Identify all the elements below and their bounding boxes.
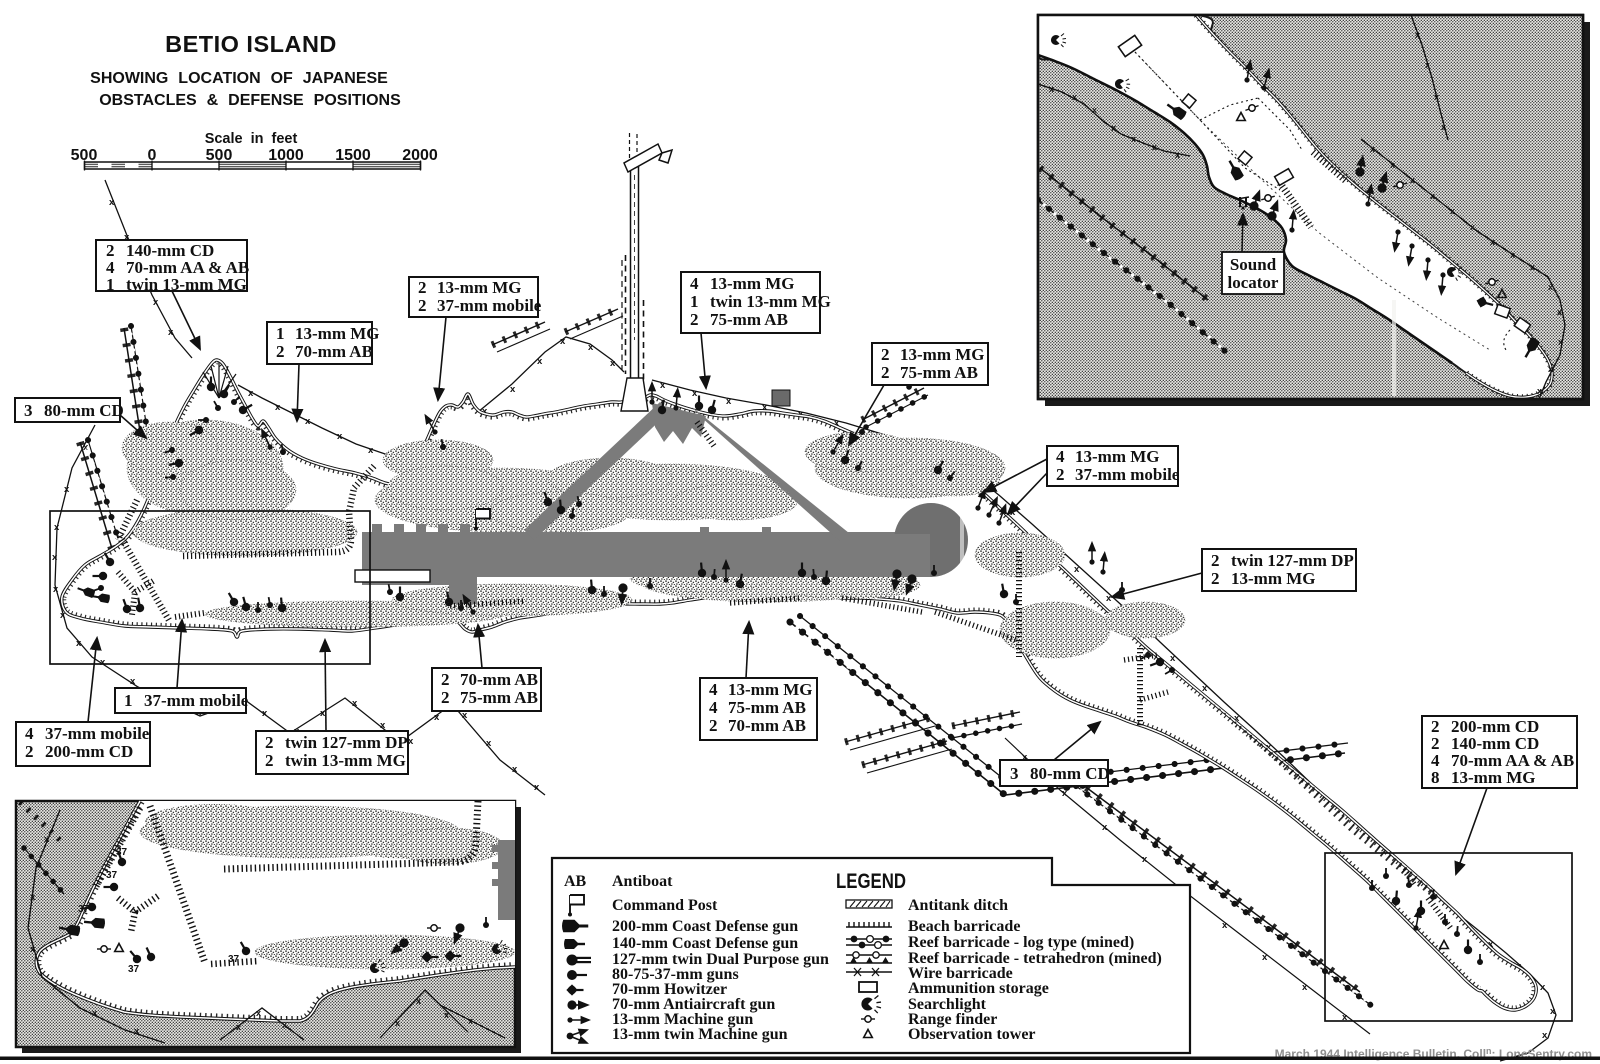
svg-text:Sound: Sound: [1230, 255, 1277, 274]
svg-text:x: x: [1415, 30, 1420, 40]
svg-text:x: x: [134, 1026, 140, 1037]
svg-text:x: x: [1175, 150, 1180, 160]
svg-text:twin 13-mm MG: twin 13-mm MG: [710, 292, 831, 311]
svg-text:200-mm Coast Defense gun: 200-mm Coast Defense gun: [612, 918, 798, 935]
svg-text:140-mm Coast Defense gun: 140-mm Coast Defense gun: [612, 935, 798, 952]
svg-text:1: 1: [276, 324, 285, 343]
svg-text:70-mm AB: 70-mm AB: [728, 716, 806, 735]
svg-text:4: 4: [690, 274, 699, 293]
svg-text:37: 37: [106, 870, 118, 881]
svg-text:x: x: [1049, 84, 1054, 94]
svg-text:x: x: [282, 1020, 287, 1030]
svg-text:x: x: [1510, 250, 1515, 260]
svg-text:x: x: [337, 431, 343, 442]
svg-text:x: x: [610, 358, 616, 369]
svg-text:twin 127-mm DP: twin 127-mm DP: [285, 733, 408, 752]
svg-text:80-mm CD: 80-mm CD: [44, 401, 124, 420]
svg-text:13-mm twin Machine gun: 13-mm twin Machine gun: [612, 1026, 788, 1043]
svg-text:75-mm AB: 75-mm AB: [728, 698, 806, 717]
svg-text:SHOWING LOCATION OF JAPANESE: SHOWING LOCATION OF JAPANESE: [90, 70, 388, 87]
svg-text:x: x: [1490, 237, 1495, 247]
svg-text:twin 127-mm DP: twin 127-mm DP: [1231, 551, 1354, 570]
svg-text:13-mm MG: 13-mm MG: [728, 680, 813, 699]
svg-text:x: x: [30, 892, 36, 903]
svg-text:2: 2: [881, 345, 890, 364]
svg-text:x: x: [1062, 788, 1068, 799]
svg-text:OBSTACLES & DEFENSE POSITIONS: OBSTACLES & DEFENSE POSITIONS: [99, 92, 401, 109]
svg-text:13-mm MG: 13-mm MG: [900, 345, 985, 364]
svg-text:80-mm CD: 80-mm CD: [1030, 764, 1110, 783]
svg-text:2: 2: [418, 278, 427, 297]
svg-text:x: x: [1131, 134, 1136, 144]
svg-text:x: x: [352, 698, 358, 709]
svg-text:Command Post: Command Post: [612, 897, 718, 914]
svg-text:x: x: [248, 388, 254, 399]
svg-text:2: 2: [25, 742, 34, 761]
svg-text:x: x: [76, 638, 82, 649]
svg-text:x: x: [1542, 1030, 1548, 1041]
svg-text:x: x: [537, 356, 543, 367]
svg-text:x: x: [1430, 191, 1435, 201]
svg-text:x: x: [1142, 854, 1148, 865]
svg-text:Beach barricade: Beach barricade: [908, 918, 1020, 935]
svg-text:x: x: [660, 380, 666, 391]
svg-text:x: x: [1557, 307, 1562, 317]
svg-text:x: x: [53, 584, 59, 595]
svg-text:x: x: [52, 552, 58, 563]
svg-text:x: x: [692, 388, 698, 399]
svg-text:75-mm AB: 75-mm AB: [460, 688, 538, 707]
svg-text:x: x: [444, 1010, 449, 1020]
svg-text:3: 3: [24, 401, 33, 420]
svg-text:37: 37: [228, 954, 240, 965]
svg-text:Antiboat: Antiboat: [612, 873, 673, 890]
svg-text:x: x: [486, 738, 492, 749]
svg-text:4: 4: [25, 724, 34, 743]
svg-text:x: x: [1074, 564, 1080, 575]
svg-text:x: x: [560, 336, 566, 347]
svg-text:x: x: [64, 484, 70, 495]
svg-text:8: 8: [1431, 768, 1440, 787]
svg-text:Antitank ditch: Antitank ditch: [908, 897, 1008, 914]
svg-text:2: 2: [1211, 569, 1220, 588]
svg-text:x: x: [1540, 982, 1546, 993]
svg-text:LEGEND: LEGEND: [836, 870, 906, 893]
svg-text:70-mm AB: 70-mm AB: [460, 670, 538, 689]
svg-text:37: 37: [128, 964, 140, 975]
svg-text:2: 2: [441, 670, 450, 689]
svg-text:Scale in feet: Scale in feet: [205, 131, 298, 147]
svg-text:x: x: [368, 445, 374, 456]
svg-text:x: x: [1548, 364, 1553, 374]
svg-text:x: x: [92, 1008, 98, 1019]
svg-text:13-mm MG: 13-mm MG: [1231, 569, 1316, 588]
svg-text:twin 13-mm MG: twin 13-mm MG: [285, 751, 406, 770]
svg-text:200-mm CD: 200-mm CD: [45, 742, 133, 761]
svg-text:x: x: [54, 522, 60, 533]
svg-text:x: x: [1434, 92, 1439, 102]
svg-text:70-mm AB: 70-mm AB: [295, 342, 373, 361]
svg-text:x: x: [130, 676, 136, 687]
svg-text:2: 2: [1211, 551, 1220, 570]
svg-text:37-mm mobile: 37-mm mobile: [144, 691, 249, 710]
svg-text:x: x: [52, 982, 58, 993]
svg-text:x: x: [534, 782, 540, 793]
svg-text:4: 4: [1056, 447, 1065, 466]
svg-text:Ammunition storage: Ammunition storage: [908, 980, 1049, 997]
svg-text:x: x: [1302, 982, 1308, 993]
svg-text:x: x: [1102, 822, 1108, 833]
svg-text:37: 37: [116, 847, 128, 858]
svg-text:x: x: [1470, 222, 1475, 232]
svg-text:37-mm mobile: 37-mm mobile: [437, 296, 542, 315]
svg-text:13-mm MG: 13-mm MG: [710, 274, 795, 293]
svg-text:13-mm MG: 13-mm MG: [1075, 447, 1160, 466]
svg-text:75-mm AB: 75-mm AB: [710, 310, 788, 329]
svg-text:x: x: [588, 342, 594, 353]
svg-text:75-mm AB: 75-mm AB: [900, 363, 978, 382]
svg-text:AB: AB: [564, 873, 587, 890]
svg-text:x: x: [1370, 144, 1375, 154]
svg-text:2: 2: [265, 733, 274, 752]
svg-text:x: x: [153, 297, 159, 308]
svg-text:x: x: [1170, 653, 1176, 664]
svg-text:x: x: [1390, 160, 1395, 170]
svg-text:x: x: [275, 402, 281, 413]
svg-text:1: 1: [106, 275, 115, 294]
svg-text:x: x: [1537, 386, 1542, 396]
svg-text:2: 2: [709, 716, 718, 735]
svg-text:x: x: [109, 197, 115, 208]
svg-text:x: x: [1548, 282, 1553, 292]
svg-text:x: x: [236, 1022, 241, 1032]
svg-text:2: 2: [276, 342, 285, 361]
svg-text:x: x: [44, 834, 50, 845]
svg-text:x: x: [1441, 122, 1446, 132]
svg-text:4: 4: [709, 698, 718, 717]
svg-text:x: x: [1450, 206, 1455, 216]
svg-text:x: x: [416, 996, 421, 1006]
svg-text:x: x: [168, 327, 174, 338]
svg-text:x: x: [100, 657, 106, 668]
svg-text:2: 2: [265, 751, 274, 770]
svg-text:2: 2: [1056, 465, 1065, 484]
svg-text:x: x: [30, 944, 36, 955]
svg-text:1: 1: [690, 292, 699, 311]
svg-text:x: x: [512, 764, 518, 775]
svg-text:37: 37: [78, 904, 90, 915]
svg-text:x: x: [1072, 92, 1077, 102]
svg-text:x: x: [468, 1016, 473, 1026]
svg-text:x: x: [1092, 105, 1097, 115]
svg-text:x: x: [380, 720, 386, 731]
svg-text:x: x: [256, 1008, 261, 1018]
svg-text:x: x: [1262, 952, 1268, 963]
svg-text:4: 4: [709, 680, 718, 699]
svg-text:x: x: [1550, 1006, 1556, 1017]
svg-text:locator: locator: [1228, 273, 1279, 292]
svg-text:x: x: [1425, 60, 1430, 70]
svg-text:2: 2: [881, 363, 890, 382]
svg-text:Reef barricade - log type (min: Reef barricade - log type (mined): [908, 934, 1134, 951]
svg-text:37-mm mobile: 37-mm mobile: [45, 724, 150, 743]
svg-text:13-mm MG: 13-mm MG: [437, 278, 522, 297]
svg-text:2: 2: [418, 296, 427, 315]
svg-text:twin 13-mm MG: twin 13-mm MG: [126, 275, 247, 294]
svg-text:x: x: [434, 712, 440, 723]
svg-text:x: x: [510, 384, 516, 395]
svg-text:3: 3: [1010, 764, 1019, 783]
svg-text:2: 2: [441, 688, 450, 707]
svg-text:x: x: [1530, 262, 1535, 272]
svg-text:13-mm MG: 13-mm MG: [1451, 768, 1536, 787]
svg-text:x: x: [1410, 175, 1415, 185]
svg-text:Observation tower: Observation tower: [908, 1026, 1036, 1043]
svg-text:13-mm MG: 13-mm MG: [295, 324, 380, 343]
svg-text:x: x: [395, 1018, 400, 1028]
svg-text:x: x: [726, 396, 732, 407]
svg-text:x: x: [1111, 123, 1116, 133]
svg-text:x: x: [1222, 920, 1228, 931]
svg-text:x: x: [1558, 337, 1563, 347]
svg-text:1: 1: [124, 691, 133, 710]
svg-text:2: 2: [690, 310, 699, 329]
svg-text:x: x: [305, 416, 311, 427]
svg-text:x: x: [262, 708, 268, 719]
svg-text:x: x: [1106, 593, 1112, 604]
svg-text:37-mm mobile: 37-mm mobile: [1075, 465, 1180, 484]
svg-text:x: x: [1152, 142, 1157, 152]
svg-text:BETIO ISLAND: BETIO ISLAND: [165, 31, 337, 57]
